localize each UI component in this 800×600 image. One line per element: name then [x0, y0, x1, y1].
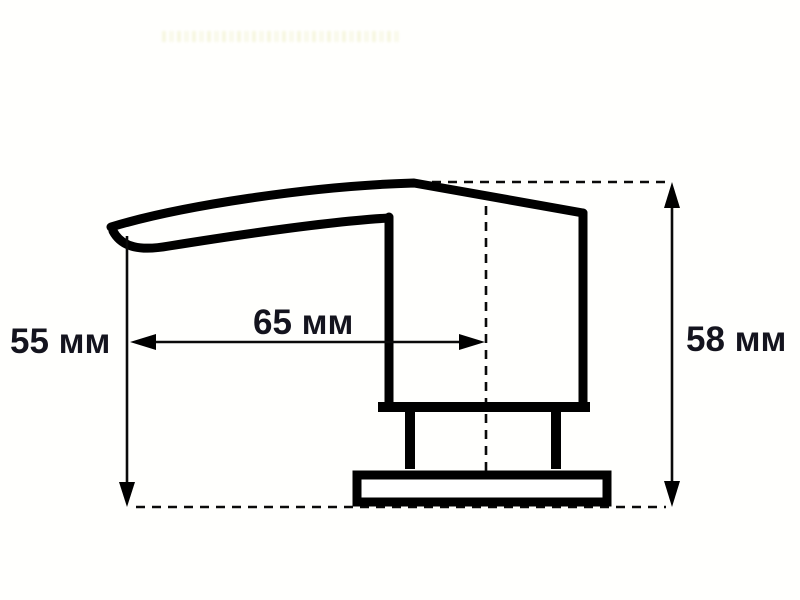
drawing-stage: 55 мм 65 мм 58 мм: [0, 0, 800, 600]
dimension-drawing-canvas: 55 мм 65 мм 58 мм: [0, 0, 800, 600]
faint-watermark: [162, 31, 402, 42]
spout-lower-edge: [113, 218, 389, 248]
mounting-flange: [357, 475, 607, 502]
dim-65-arrow-left-icon: [130, 334, 156, 350]
dim-55-arrow-down-icon: [119, 482, 135, 507]
dim-58-arrow-down-icon: [664, 481, 680, 507]
dim-65-arrow-right-icon: [459, 334, 485, 350]
dim-58-arrow-up-icon: [664, 182, 680, 208]
dimension-label-65mm: 65 мм: [253, 303, 353, 342]
dimension-label-58mm: 58 мм: [686, 320, 786, 359]
dimension-label-55mm: 55 мм: [10, 322, 110, 361]
